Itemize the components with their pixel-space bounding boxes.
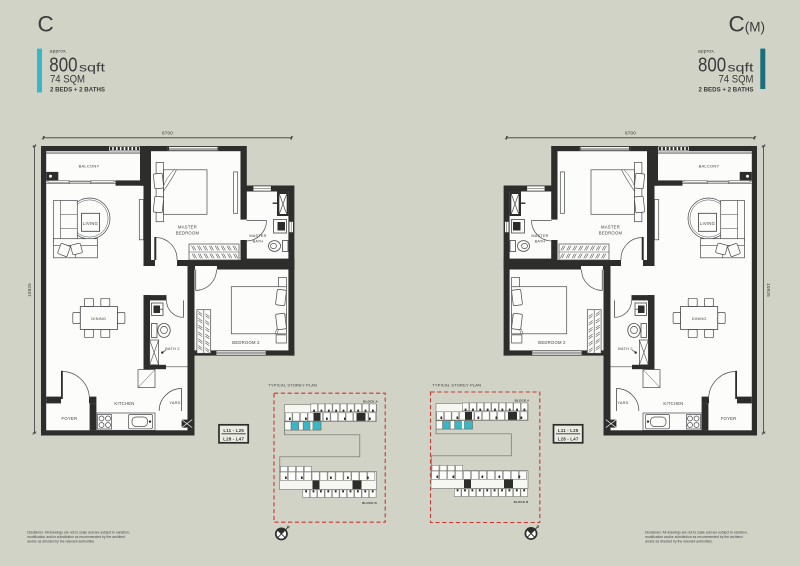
svg-text:modification and/or substituti: modification and/or substitution as reco… (645, 535, 743, 539)
svg-text:BLOCK A: BLOCK A (363, 399, 378, 403)
svg-text:BATH: BATH (253, 240, 264, 244)
svg-text:10925: 10925 (766, 283, 771, 297)
svg-text:BATH 2: BATH 2 (618, 347, 633, 351)
svg-text:C: C (38, 11, 55, 36)
svg-text:MASTER: MASTER (531, 234, 548, 238)
svg-text:BATH 2: BATH 2 (165, 347, 180, 351)
svg-text:L28 - L47: L28 - L47 (223, 437, 244, 442)
svg-text:BATH: BATH (535, 240, 546, 244)
svg-text:Disclaimer: All drawings are n: Disclaimer: All drawings are not to scal… (645, 531, 748, 535)
svg-text:10925: 10925 (27, 283, 32, 297)
svg-text:TYPICAL STOREY PLAN: TYPICAL STOREY PLAN (268, 382, 317, 387)
svg-text:74 SQM: 74 SQM (719, 74, 754, 86)
svg-text:KITCHEN: KITCHEN (663, 401, 683, 406)
svg-text:YARD: YARD (169, 401, 180, 405)
svg-text:BALCONY: BALCONY (699, 164, 720, 169)
svg-text:and/or as directed by the rele: and/or as directed by the relevant autho… (27, 539, 95, 543)
svg-text:LIVING: LIVING (700, 221, 715, 226)
svg-text:sqft: sqft (79, 62, 106, 74)
svg-text:MASTER: MASTER (601, 224, 620, 229)
svg-text:sqft: sqft (728, 62, 755, 74)
svg-text:74 SQM: 74 SQM (50, 74, 85, 86)
svg-text:L28 - L47: L28 - L47 (558, 437, 579, 442)
svg-text:Disclaimer: All drawings are n: Disclaimer: All drawings are not to scal… (27, 531, 130, 535)
svg-text:BLOCK B: BLOCK B (514, 500, 529, 504)
svg-text:BLOCK A: BLOCK A (515, 398, 530, 402)
svg-text:KITCHEN: KITCHEN (114, 401, 134, 406)
svg-text:DINING: DINING (692, 317, 707, 321)
svg-text:DINING: DINING (91, 317, 106, 321)
svg-text:TYPICAL STOREY PLAN: TYPICAL STOREY PLAN (432, 382, 481, 387)
svg-text:YARD: YARD (617, 401, 628, 405)
svg-text:BALCONY: BALCONY (79, 164, 100, 169)
svg-text:L11 - L25: L11 - L25 (558, 428, 579, 433)
svg-text:FOYER: FOYER (62, 416, 78, 421)
svg-text:2 BEDS + 2 BATHS: 2 BEDS + 2 BATHS (50, 87, 105, 93)
svg-text:BEDROOM 2: BEDROOM 2 (538, 340, 566, 345)
svg-text:MASTER: MASTER (178, 224, 197, 229)
svg-text:and/or as directed by the rele: and/or as directed by the relevant autho… (645, 539, 713, 543)
svg-text:8700: 8700 (625, 131, 636, 136)
svg-text:BEDROOM 2: BEDROOM 2 (232, 340, 260, 345)
svg-text:MASTER: MASTER (249, 234, 266, 238)
svg-text:BEDROOM: BEDROOM (599, 230, 623, 235)
svg-text:2 BEDS + 2 BATHS: 2 BEDS + 2 BATHS (699, 87, 754, 93)
svg-text:BLOCK B: BLOCK B (362, 501, 377, 505)
svg-text:BEDROOM: BEDROOM (176, 230, 200, 235)
svg-text:8700: 8700 (162, 131, 173, 136)
svg-text:FOYER: FOYER (721, 416, 737, 421)
svg-text:LIVING: LIVING (83, 221, 98, 226)
svg-text:modification and/or substituti: modification and/or substitution as reco… (27, 535, 125, 539)
svg-text:L11 - L25: L11 - L25 (223, 428, 244, 433)
